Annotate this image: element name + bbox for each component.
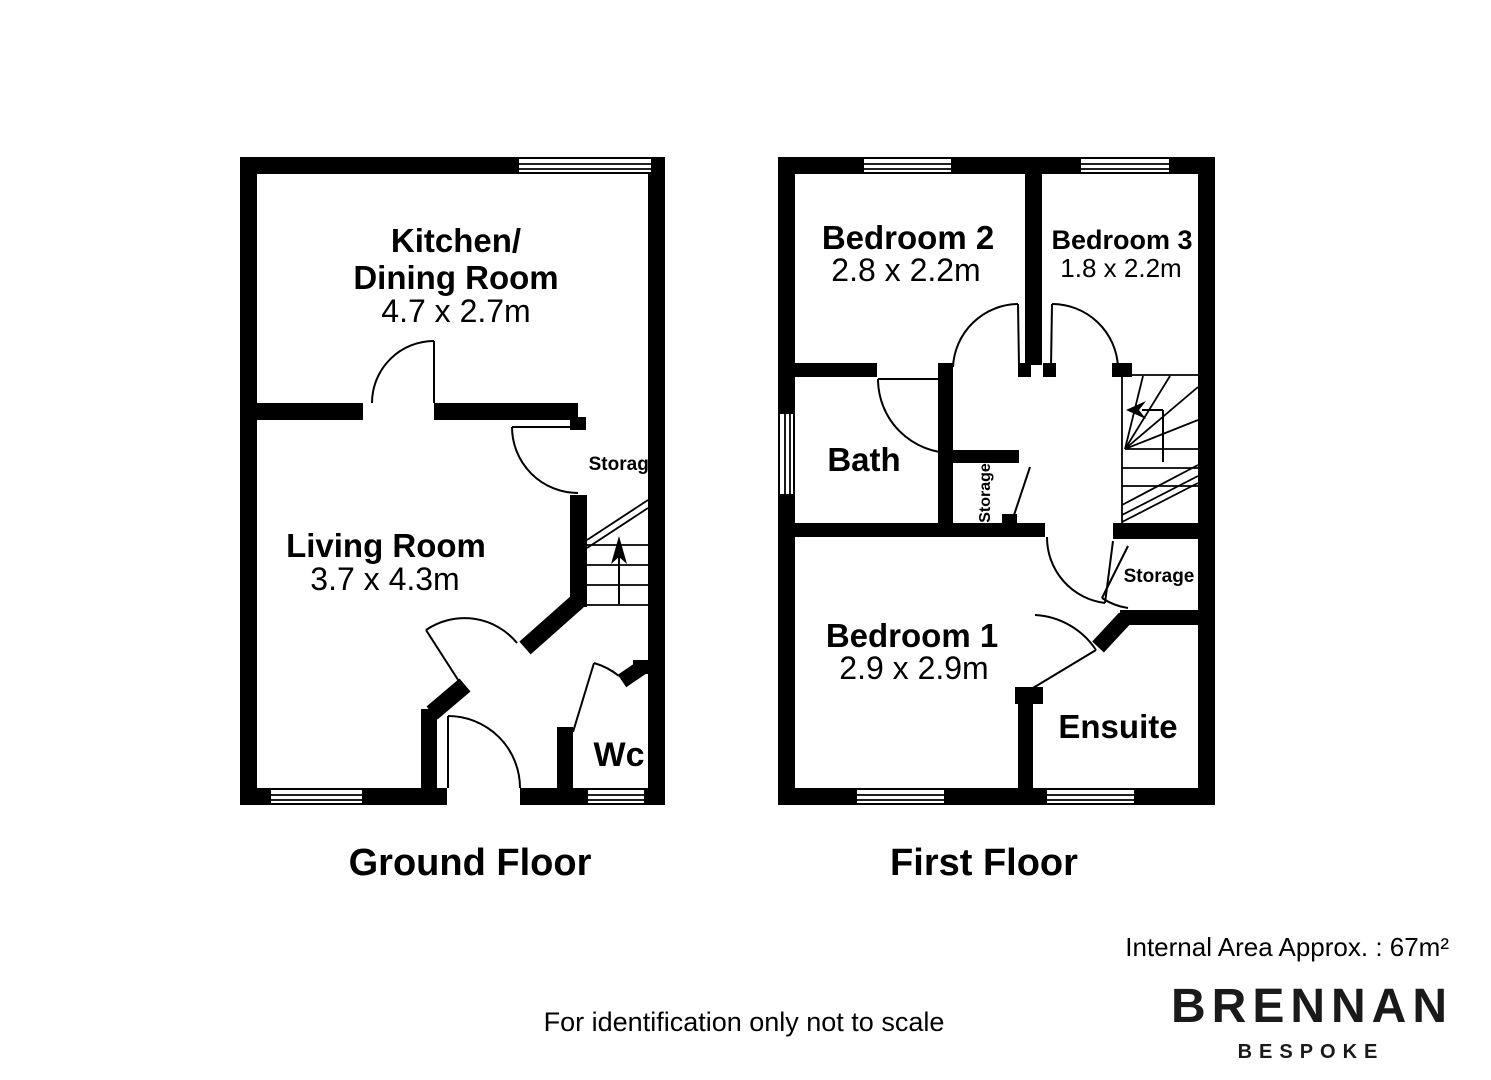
door-leaf: [1028, 650, 1096, 691]
winder-tread: [1125, 420, 1198, 449]
first-floor-plan: Bedroom 2 2.8 x 2.2m Bedroom 3 1.8 x 2.2…: [778, 157, 1215, 805]
bedroom2-label: Bedroom 2: [822, 219, 994, 256]
understairs-storage-door: [512, 427, 578, 493]
ground-floor-stairs: [587, 500, 648, 605]
door-leaf: [1012, 467, 1030, 521]
wall-segment: [1025, 174, 1042, 365]
wall-segment-angled: [622, 666, 644, 681]
wall-segment: [1112, 363, 1132, 377]
disclaimer-note: For identification only not to scale: [544, 1007, 945, 1037]
bedroom1-door: [1047, 537, 1113, 603]
wall-segment: [778, 788, 1215, 805]
door-leaf: [573, 663, 594, 732]
storage-label: Storage: [589, 454, 660, 475]
door-swing-arc: [1035, 615, 1096, 650]
window-glyph: [1046, 789, 1135, 804]
wall-segment: [795, 523, 1045, 537]
stair-break-line: [1122, 476, 1198, 515]
stair-break-line: [1122, 465, 1198, 505]
bath-label: Bath: [827, 441, 900, 478]
wall-segment: [257, 403, 363, 420]
door-swing-arc: [372, 341, 434, 403]
wall-segment: [1120, 610, 1198, 625]
brand-tagline: BESPOKE: [1238, 1041, 1385, 1063]
door-leaf: [426, 630, 462, 686]
wall-segment: [240, 157, 257, 805]
door-swing-arc: [953, 304, 1018, 367]
living-room-door: [426, 618, 517, 686]
bedroom2-door: [953, 304, 1019, 367]
captions: Ground Floor First Floor Internal Area A…: [349, 842, 1453, 1063]
wall-segment: [1198, 157, 1215, 805]
stair-break-line: [1122, 483, 1198, 522]
window-glyph: [270, 789, 363, 804]
bedroom1-label: Bedroom 1: [826, 617, 998, 654]
door-swing-arc: [1047, 537, 1105, 603]
door-leaf: [1105, 541, 1113, 603]
door-leaf: [1051, 304, 1052, 367]
window-glyph: [1080, 158, 1170, 173]
ensuite-label: Ensuite: [1058, 708, 1177, 745]
door-swing-arc: [448, 716, 520, 788]
floorplan-canvas: Kitchen/ Dining Room 4.7 x 2.7m Living R…: [0, 0, 1491, 1080]
stair-break-line: [587, 500, 648, 540]
kitchen-door: [372, 341, 434, 403]
internal-area-note: Internal Area Approx. : 67m²: [1125, 932, 1449, 962]
front-door: [448, 716, 520, 788]
first-floor-stairs: [1122, 375, 1198, 523]
stairs-up-arrow-icon: [611, 536, 627, 604]
bedroom2-dimensions: 2.8 x 2.2m: [831, 252, 980, 288]
window-glyph: [856, 789, 945, 804]
kitchen-dining-label-line1: Kitchen/: [391, 222, 521, 259]
bedroom3-label: Bedroom 3: [1051, 225, 1192, 255]
brand-wordmark: BRENNAN: [1171, 980, 1453, 1033]
wall-segment: [557, 727, 573, 789]
wall-segment: [1113, 523, 1198, 539]
wall-segment-angled: [1098, 618, 1125, 647]
front-door-opening: [447, 787, 520, 806]
living-room-label: Living Room: [286, 527, 486, 564]
winder-tread: [1125, 387, 1198, 449]
wc-door: [573, 663, 619, 732]
ground-floor-title: Ground Floor: [349, 842, 592, 884]
door-swing-arc: [426, 618, 517, 643]
first-floor-labels: Bedroom 2 2.8 x 2.2m Bedroom 3 1.8 x 2.2…: [822, 219, 1195, 745]
wall-segment-angled: [432, 685, 465, 713]
wall-segment: [421, 709, 437, 789]
wc-label: Wc: [594, 736, 645, 774]
kitchen-dining-dimensions: 4.7 x 2.7m: [381, 293, 530, 329]
door-swing-arc: [512, 427, 578, 493]
bedroom3-dimensions: 1.8 x 2.2m: [1060, 253, 1181, 283]
landing-storage-door: [1012, 467, 1030, 521]
floorplan-page: Kitchen/ Dining Room 4.7 x 2.7m Living R…: [0, 0, 1491, 1080]
ensuite-door: [1028, 615, 1096, 691]
bedroom3-door: [1051, 304, 1118, 367]
ground-floor-labels: Kitchen/ Dining Room 4.7 x 2.7m Living R…: [286, 222, 659, 774]
window-glyph: [587, 789, 645, 804]
door-leaf: [1018, 304, 1019, 367]
wall-segment-angled: [525, 601, 578, 648]
window-glyph: [518, 158, 652, 173]
bedroom1-dimensions: 2.9 x 2.9m: [839, 650, 988, 686]
door-swing-arc: [594, 663, 619, 676]
wall-segment: [938, 363, 953, 377]
landing-storage-label: Storage: [977, 463, 994, 523]
window-glyph: [779, 413, 794, 495]
kitchen-dining-label-line2: Dining Room: [353, 259, 558, 296]
wall-segment: [938, 377, 953, 537]
stair-storage-label: Storage: [1124, 566, 1195, 587]
wall-segment: [648, 157, 665, 805]
wall-segment: [1043, 363, 1056, 377]
wall-segment: [1018, 704, 1033, 788]
wall-segment: [570, 417, 586, 430]
ground-floor-plan: Kitchen/ Dining Room 4.7 x 2.7m Living R…: [240, 157, 665, 806]
window-glyph: [863, 158, 952, 173]
door-swing-arc: [1052, 304, 1118, 367]
first-floor-title: First Floor: [890, 842, 1078, 884]
wall-segment: [570, 495, 587, 607]
wall-segment: [434, 403, 578, 420]
wall-segment: [953, 450, 1019, 463]
living-room-dimensions: 3.7 x 4.3m: [310, 561, 459, 597]
wall-segment: [795, 363, 877, 377]
